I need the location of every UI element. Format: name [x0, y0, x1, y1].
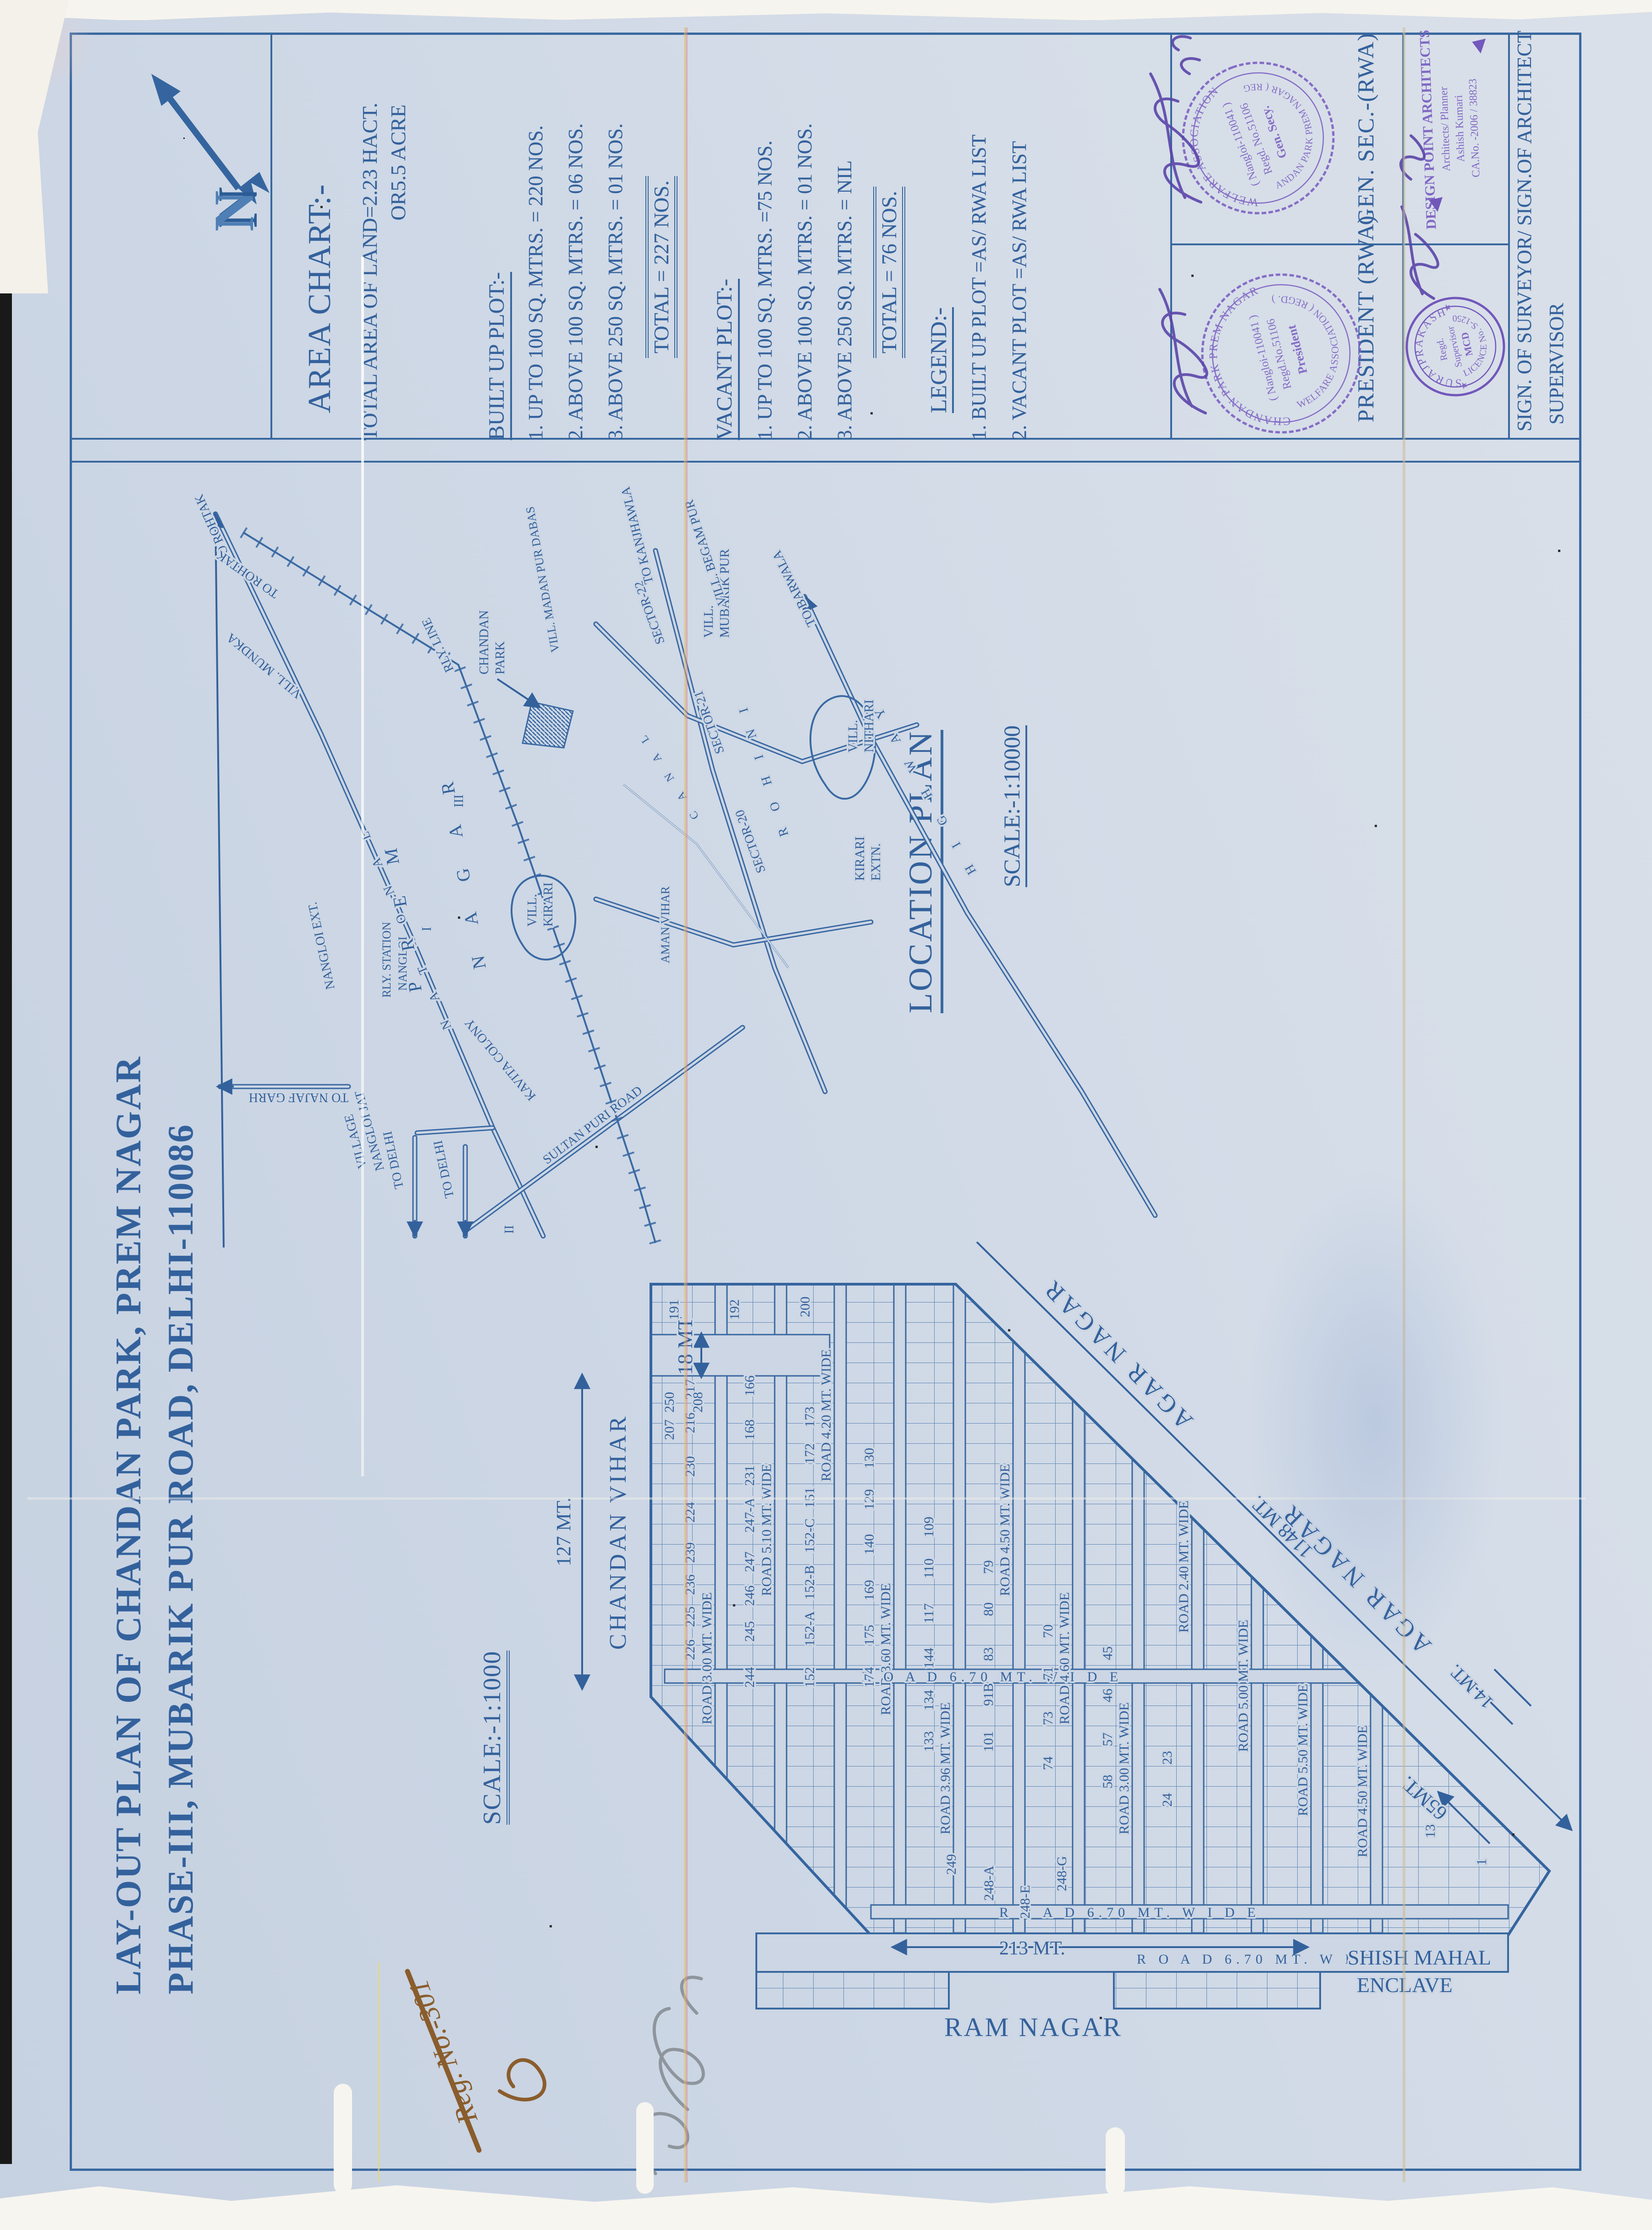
- neighborhood-label: RAM NAGAR: [944, 2012, 1123, 2042]
- plot-number: 208: [690, 1392, 705, 1413]
- map-label: VILL. MADAN PUR DABAS: [523, 506, 562, 653]
- road-label: ROAD 4.50 MT. WIDE: [997, 1464, 1013, 1596]
- dim-label: 213 MT.: [999, 1938, 1065, 1959]
- plot-number: 216: [683, 1413, 698, 1433]
- plot-number: 173: [802, 1407, 817, 1427]
- plot-number: 79: [981, 1560, 996, 1574]
- map-label: KAVITA COLONY: [462, 1016, 539, 1103]
- president-stamp: CHANDAN PARK PREM NAGAR WELFARE ASSOCIAT…: [1185, 258, 1377, 449]
- plot-number: 71: [1041, 1667, 1056, 1680]
- plot-number: 83: [981, 1647, 996, 1661]
- architect-stamp-mark: [1472, 39, 1486, 54]
- location-plan-map: TO ROHTAK TO ROHTAK VILL. MUNDKA RLY. LI…: [192, 485, 1155, 1247]
- plot-number: 101: [981, 1731, 996, 1752]
- plot-number: 248-G: [1054, 1856, 1069, 1891]
- road-label: ROAD 3.60 MT. WIDE: [878, 1583, 893, 1715]
- architect-stamp-line: Ashish Kumari: [1453, 95, 1467, 162]
- road-label: ROAD 3.96 MT. WIDE: [938, 1702, 953, 1834]
- architect-stamp: DESIGN POINT ARCHITECTS Architects/ Plan…: [1416, 28, 1492, 230]
- handwriting-flourish: [500, 2060, 545, 2099]
- pencil-scribble: [641, 1977, 703, 2174]
- plot-number: 246: [742, 1585, 757, 1606]
- map-label: TO DELHI: [431, 1139, 457, 1199]
- map-label: TO NAJAF GARH: [249, 1090, 348, 1104]
- plot-number: 58: [1100, 1775, 1115, 1788]
- road-label: ROAD 5.00 MT. WIDE: [1236, 1620, 1251, 1752]
- plot-number: 207: [662, 1419, 677, 1440]
- plot-number: 133: [921, 1731, 936, 1752]
- plot-number: 13: [1423, 1824, 1438, 1838]
- map-label: TO BARWALA: [770, 548, 819, 629]
- plot-number: 45: [1100, 1646, 1115, 1660]
- plot-number: 224: [683, 1502, 698, 1523]
- plot-number: 231: [742, 1465, 757, 1486]
- plot-number: 239: [683, 1542, 698, 1563]
- map-label: SECTOR-22: [632, 579, 667, 646]
- map-label: AMAN VIHAR: [659, 886, 672, 963]
- plot-number: 140: [862, 1534, 877, 1555]
- plot-number: 110: [921, 1558, 936, 1579]
- plot-number: 1: [1474, 1859, 1489, 1866]
- map-label: CHANDAN: [477, 610, 491, 674]
- plot-number: 134: [921, 1690, 936, 1711]
- plot-number: 152-B: [802, 1565, 817, 1600]
- plot-number: 57: [1100, 1733, 1115, 1746]
- map-label: III: [452, 795, 466, 807]
- map-label: EXTN.: [869, 843, 883, 881]
- location-labels: TO ROHTAK TO ROHTAK VILL. MUNDKA RLY. LI…: [192, 485, 979, 1234]
- plot-number: 152-C: [802, 1518, 817, 1553]
- map-label: KIRARI: [853, 837, 867, 881]
- plot-number: 247: [742, 1551, 757, 1572]
- map-label: C A N A L: [634, 728, 701, 822]
- plot-number: 225: [683, 1606, 698, 1627]
- map-label: VILL.: [846, 720, 860, 752]
- architect-stamp-line: Architects/ Planner: [1438, 87, 1453, 171]
- scanned-blueprint-page: { "compass": { "letter": "N" }, "title_b…: [0, 0, 1652, 2229]
- handwritten-reg-no: Reg. No.-301: [403, 1976, 484, 2128]
- plot-number: 230: [683, 1456, 698, 1477]
- map-label: VILL. MUNDKA: [224, 630, 305, 701]
- signature-president: [1160, 289, 1207, 413]
- road-label: ROAD 2.40 MT. WIDE: [1176, 1501, 1191, 1633]
- map-label: H I G H W A Y: [867, 698, 979, 877]
- plot-number: 168: [742, 1419, 757, 1440]
- supervisor-stamp: SURAJPRAKASH LICENCE No. S-1250 Regd. Su…: [1398, 289, 1513, 404]
- plot-number: 70: [1041, 1624, 1056, 1638]
- plot-number: 248-E: [1018, 1885, 1033, 1919]
- plot-number: 46: [1100, 1689, 1115, 1702]
- plot-number: 250: [662, 1392, 677, 1413]
- plot-strip: [756, 1972, 949, 2009]
- plot-number: 73: [1041, 1711, 1056, 1725]
- road-label: ROAD 3.00 MT. WIDE: [1117, 1702, 1132, 1834]
- map-label: SECTOR-21: [691, 689, 727, 756]
- sheet-drawings: TO ROHTAK TO ROHTAK VILL. MUNDKA RLY. LI…: [0, 0, 1652, 2229]
- main-layout-plan: ROAD 3.00 MT. WIDE ROAD 5.10 MT. WIDE RO…: [552, 1242, 1570, 2042]
- arterial-label: R O A D 6.70 MT. W I D E: [999, 1905, 1260, 1920]
- star-icon: ★: [1442, 303, 1453, 313]
- road-label: ROAD 3.00 MT. WIDE: [699, 1592, 715, 1724]
- north-letter: N: [203, 190, 265, 232]
- compass-arrow-head: [151, 74, 181, 106]
- map-label: SECTOR-20: [732, 808, 768, 875]
- plot-number: 172: [802, 1443, 817, 1464]
- map-label: TO KANJHAWLA: [618, 485, 656, 585]
- plot-number: 144: [921, 1648, 936, 1668]
- map-label: VILL.: [525, 894, 540, 927]
- plot-number: 24: [1160, 1793, 1175, 1807]
- plot-number: 74: [1041, 1756, 1056, 1770]
- road-label: ROAD 4.20 MT. WIDE: [819, 1349, 834, 1481]
- blueprint-sheet: LAY-OUT PLAN OF CHANDAN PARK, PREM NAGAR…: [0, 0, 1652, 2229]
- map-label: I: [420, 927, 434, 931]
- plot-number: 174: [862, 1667, 877, 1688]
- chandan-park-marker: [497, 679, 573, 748]
- compass-arrow-shaft: [165, 92, 238, 188]
- architect-stamp-line: CA.No. -2006 / 38823: [1467, 78, 1482, 177]
- road-label: ROAD 4.60 MT. WIDE: [1057, 1592, 1072, 1724]
- plot-number: 117: [921, 1603, 936, 1623]
- plot-number: 236: [683, 1574, 698, 1595]
- road-label: ROAD 5.10 MT. WIDE: [759, 1464, 774, 1596]
- map-label: NANGLOI EXT.: [305, 901, 338, 991]
- map-label: PARK: [493, 641, 507, 674]
- map-label: TO ROHTAK: [214, 547, 281, 601]
- map-label: KIRARI: [541, 883, 556, 927]
- road-label: ROAD 4.50 MT. WIDE: [1355, 1725, 1370, 1857]
- plot-number: 169: [862, 1580, 877, 1601]
- map-label: VILL.: [702, 605, 716, 638]
- plot-number: 191: [666, 1299, 682, 1320]
- plot-number: 247-A: [742, 1497, 757, 1533]
- plot-number: 130: [862, 1448, 877, 1468]
- plot-number: 245: [742, 1621, 757, 1642]
- plot-strip: [1114, 1972, 1320, 2009]
- plot-number: 152-A: [802, 1611, 817, 1646]
- neighborhood-label: SHISH MAHAL: [1348, 1946, 1491, 1969]
- plot-number: 23: [1160, 1751, 1175, 1765]
- dim-label: 127 MT.: [552, 1497, 575, 1567]
- plot-number: 192: [727, 1299, 742, 1320]
- plot-number: 91B: [981, 1683, 996, 1706]
- map-label: II: [502, 1225, 517, 1234]
- plot-number: 166: [742, 1375, 757, 1396]
- plot-number: 226: [683, 1639, 698, 1660]
- plot-number: 248-A: [981, 1866, 997, 1901]
- plot-number: 200: [798, 1297, 813, 1317]
- neighborhood-label: ENCLAVE: [1357, 1973, 1453, 1997]
- plot-number: 151: [802, 1487, 817, 1508]
- north-compass: N N: [151, 74, 270, 232]
- plot-number: 80: [981, 1602, 996, 1616]
- dim-label: 14 MT.: [1445, 1661, 1498, 1713]
- plot-number: 109: [921, 1517, 936, 1537]
- road-label: ROAD 5.50 MT. WIDE: [1295, 1684, 1311, 1816]
- plot-number: 129: [862, 1489, 877, 1510]
- map-label: RLY. STATION: [380, 922, 393, 998]
- plan-blocks: [651, 1284, 1549, 1935]
- dim-label: 18 MT: [673, 1317, 697, 1375]
- neighborhood-label: CHANDAN VIHAR: [605, 1414, 631, 1650]
- plot-number: 152: [802, 1667, 817, 1688]
- plot-number: 249: [944, 1854, 959, 1875]
- arterial-label: R O A D 6.70 MT. W I D E: [862, 1669, 1123, 1684]
- plot-number: 244: [742, 1667, 757, 1688]
- plot-number: 175: [862, 1625, 877, 1645]
- handwriting-group: Reg. No.-301: [403, 1971, 704, 2174]
